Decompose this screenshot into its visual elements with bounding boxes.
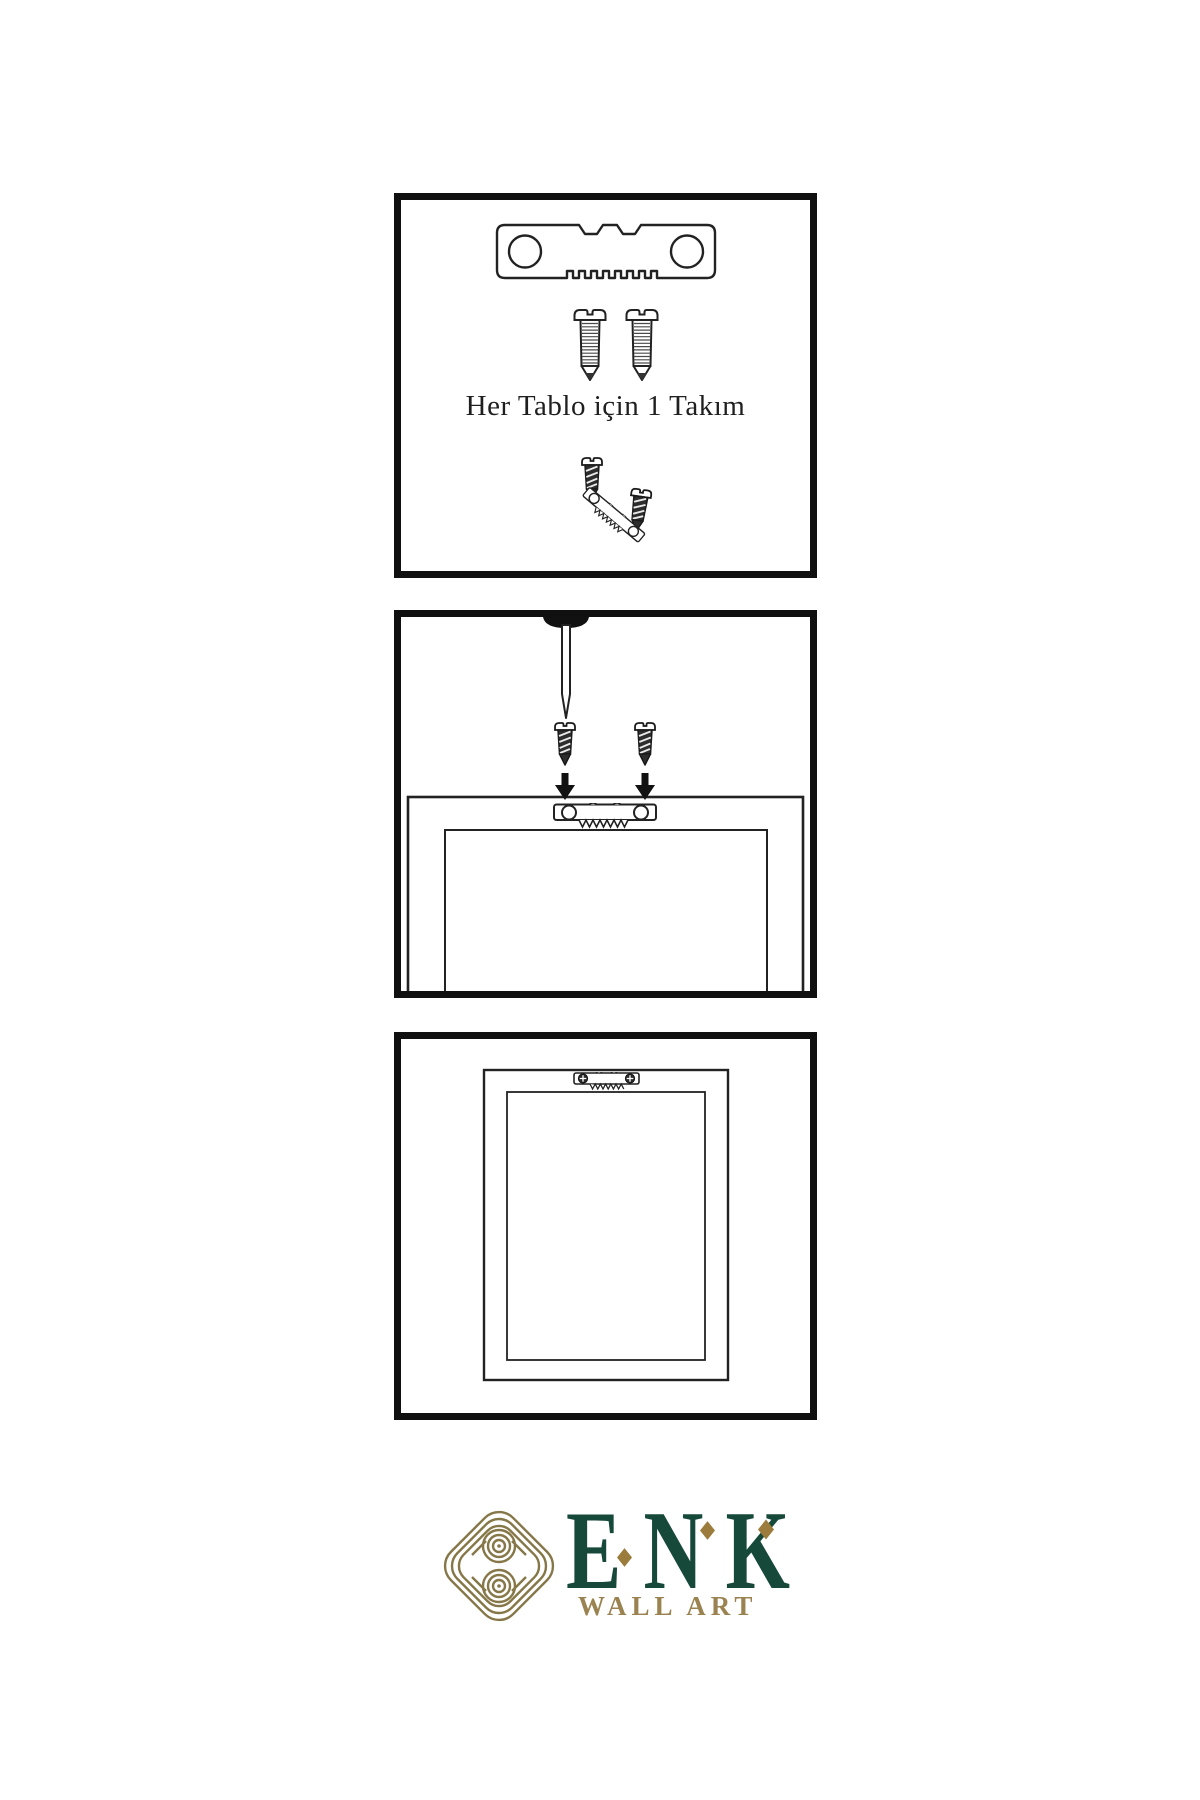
screw-icon [575,310,606,380]
step-2-graphic [401,617,810,991]
step-2-panel [394,610,817,998]
instruction-sheet: Her Tablo için 1 Takım ENK WALL ART [0,0,1200,1800]
kit-caption: Her Tablo için 1 Takım [401,390,810,423]
sawtooth-hanger-icon [497,225,715,278]
step-3-graphic [401,1039,810,1413]
frame-inner-edge [507,1092,705,1360]
brand-tagline: WALL ART [578,1591,757,1622]
step-1-panel: Her Tablo için 1 Takım [394,193,817,578]
screw-icon [627,310,658,380]
dark-screw-icon [555,723,575,765]
knot-logo-icon [435,1502,563,1630]
step-3-panel [394,1032,817,1420]
diamond-icon [617,1548,632,1567]
dark-screw-icon [635,723,655,765]
frame-inner-edge [445,830,767,991]
diamond-icon [700,1521,715,1540]
step-1-graphic [401,200,810,571]
diamond-icon [758,1519,774,1540]
nail-icon [543,617,589,718]
